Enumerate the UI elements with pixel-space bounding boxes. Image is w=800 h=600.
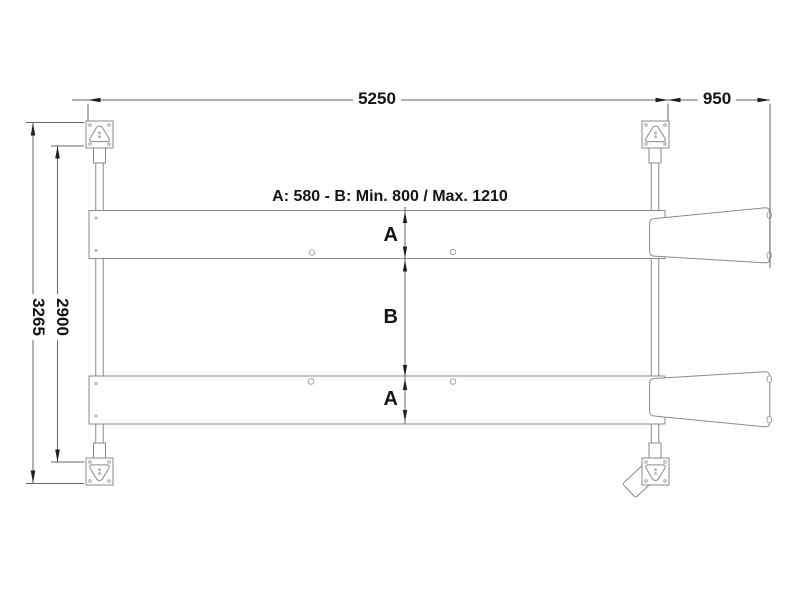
dim-text-5250: 5250: [353, 89, 401, 109]
runway-bottom: [89, 376, 665, 424]
lift-top-view-drawing: 5250 950 3265 2900 A: 580 - B: Min. 800 …: [0, 0, 800, 600]
dim-text-2900: 2900: [52, 294, 72, 340]
dim-text-950: 950: [698, 89, 736, 109]
post-plate-bottom-right: [642, 458, 669, 485]
note-ab-values: A: 580 - B: Min. 800 / Max. 1210: [272, 188, 508, 206]
ramp-bottom-right: [650, 372, 772, 427]
dim-text-3265: 3265: [28, 294, 48, 340]
ramp-top-right: [650, 208, 772, 263]
post-plate-top-left: [86, 121, 113, 148]
section-label-a-top: A: [384, 224, 398, 247]
post-plate-top-right: [642, 121, 669, 148]
section-label-a-bottom: A: [384, 388, 398, 411]
post-plate-bottom-left: [86, 458, 113, 485]
runway-top: [89, 211, 665, 259]
section-label-b: B: [384, 306, 398, 329]
